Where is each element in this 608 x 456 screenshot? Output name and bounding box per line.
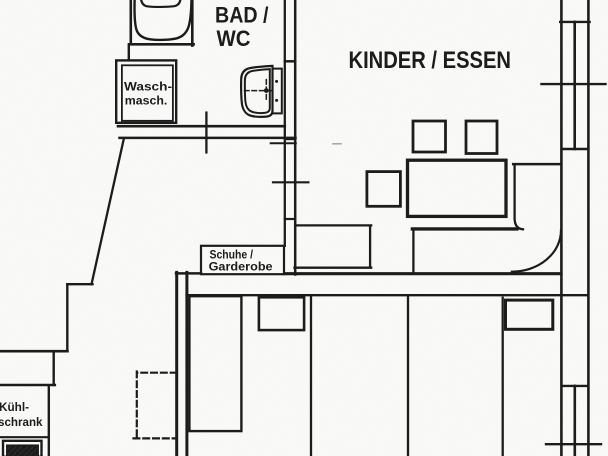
svg-text:WC: WC	[217, 26, 251, 51]
svg-text:Garderobe: Garderobe	[209, 260, 273, 274]
svg-text:schrank: schrank	[0, 417, 43, 429]
svg-text:Kühl-: Kühl-	[0, 402, 29, 414]
svg-text:masch.: masch.	[125, 95, 168, 107]
svg-text:Wasch-: Wasch-	[124, 82, 172, 94]
svg-text:BAD /: BAD /	[215, 2, 269, 27]
svg-text:KINDER / ESSEN: KINDER / ESSEN	[349, 47, 512, 74]
